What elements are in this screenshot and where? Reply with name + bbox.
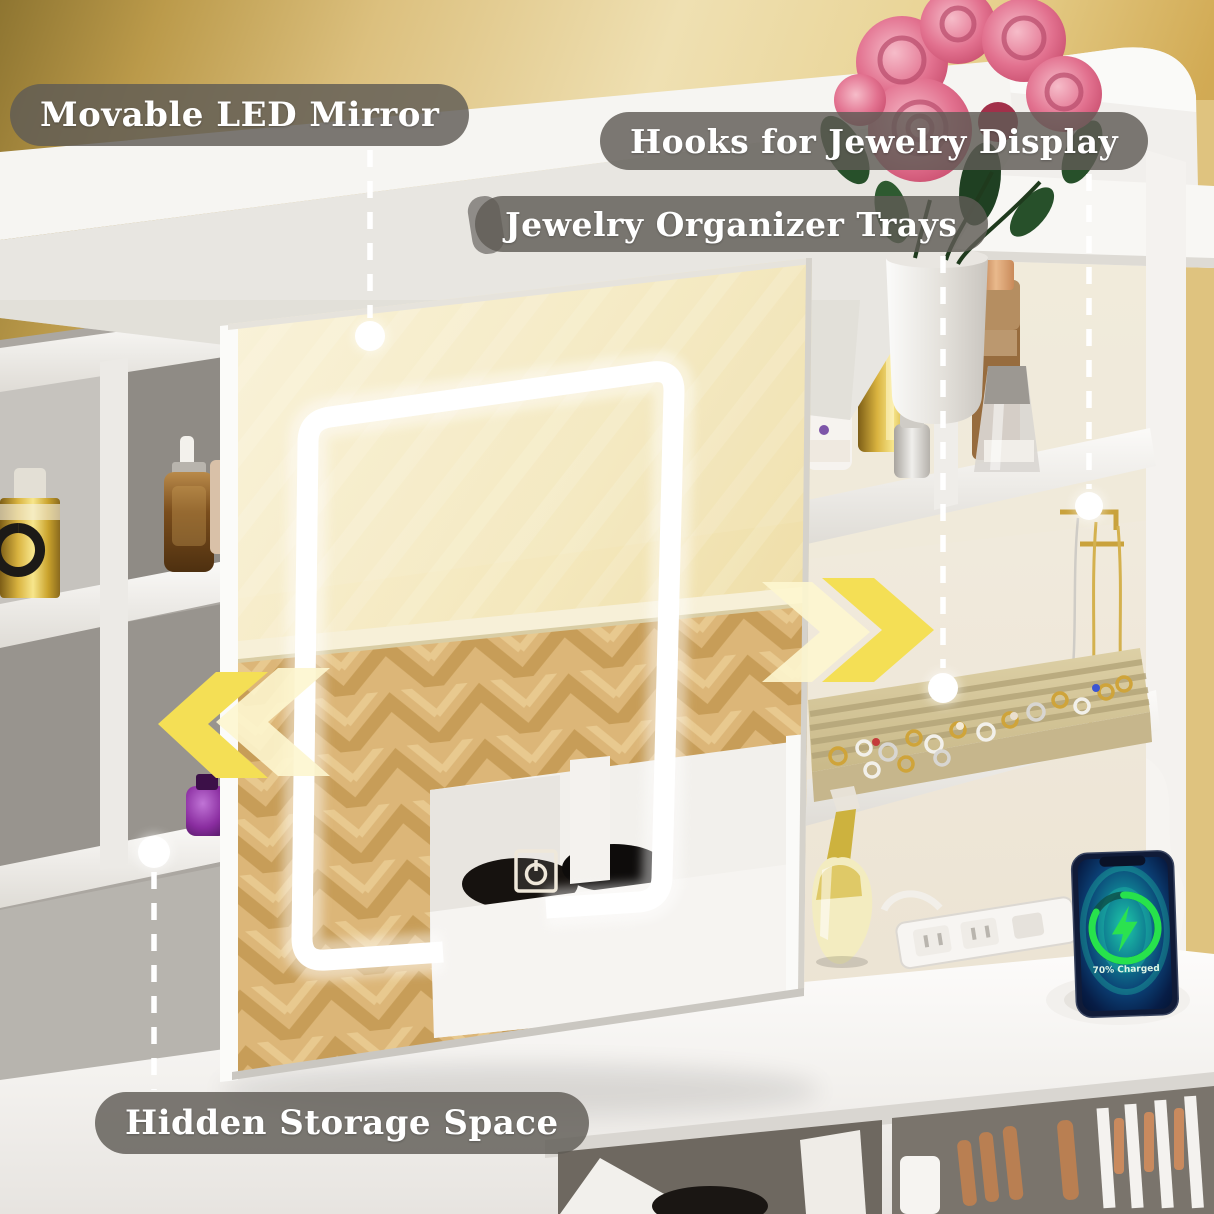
callout-label-hidden-storage-space: Hidden Storage Space [95, 1092, 589, 1154]
vanity-product-image: 70% Charged Movable LED Mirror Hooks for… [0, 0, 1214, 1214]
callout-label-movable-led-mirror: Movable LED Mirror [10, 84, 469, 146]
callout-label-jewelry-organizer-trays: Jewelry Organizer Trays [475, 196, 988, 252]
callout-label-hooks-jewelry-display: Hooks for Jewelry Display [600, 112, 1148, 170]
left-shelf-divider [100, 358, 128, 870]
flower-vase [886, 248, 988, 424]
callout-dot-mirror [355, 321, 385, 351]
touch-power-icon [516, 851, 556, 891]
callout-dot-trays [928, 673, 958, 703]
callout-dot-hooks [1075, 492, 1103, 520]
callout-dot-storage [138, 836, 170, 868]
photo-scene: 70% Charged [0, 0, 1214, 1214]
